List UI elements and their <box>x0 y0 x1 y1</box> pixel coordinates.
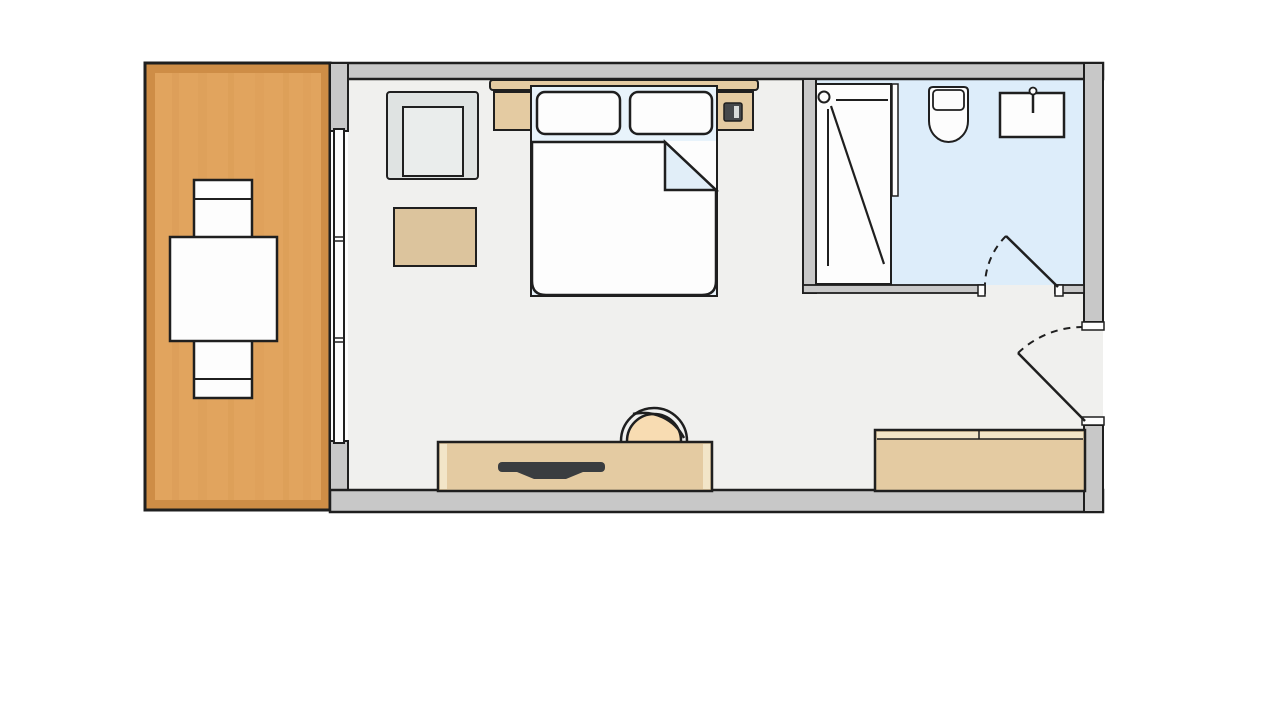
wall-right-upper <box>1084 63 1103 322</box>
wall-bottom <box>330 490 1103 512</box>
wall-bathroom-bottom-left <box>803 285 985 293</box>
balcony-chair-bottom <box>194 340 252 398</box>
sideboard-side-panel-right <box>703 444 710 489</box>
telephone-handset <box>734 106 739 118</box>
wall-left-stub-bottom <box>330 441 348 492</box>
wall-right-lower <box>1084 425 1103 512</box>
tv <box>498 462 605 472</box>
wardrobe-door-track <box>877 432 1083 439</box>
window-frame <box>334 129 344 443</box>
toilet-lid <box>933 90 964 110</box>
wall-top <box>330 63 1103 79</box>
sideboard-side-panel-left <box>440 444 447 489</box>
entry-door-opening <box>1084 330 1103 417</box>
bathroom-door-jamb-left <box>978 285 985 296</box>
telephone-icon <box>724 103 742 121</box>
wood-grain <box>283 73 289 500</box>
balcony-window <box>334 129 344 443</box>
floor-plan <box>0 0 1280 720</box>
entry-door-jamb-bottom <box>1082 417 1104 425</box>
floor-plan-svg <box>0 0 1280 720</box>
pillow-right <box>630 92 712 134</box>
shower-head-icon <box>819 92 830 103</box>
balcony-chair-top <box>194 180 252 238</box>
nightstand-left <box>494 92 531 130</box>
shower-glass-panel <box>892 84 898 196</box>
entry-door-jamb-top <box>1082 322 1104 330</box>
balcony <box>145 63 330 510</box>
armchair-seat <box>403 107 463 176</box>
wall-partition-bathroom <box>803 79 816 293</box>
ottoman-rug <box>394 208 476 266</box>
wall-left-stub-top <box>330 63 348 131</box>
pillow-left <box>537 92 620 134</box>
sink-tap-knob <box>1030 88 1037 95</box>
wood-grain <box>303 73 311 500</box>
balcony-dining-table <box>170 237 277 341</box>
